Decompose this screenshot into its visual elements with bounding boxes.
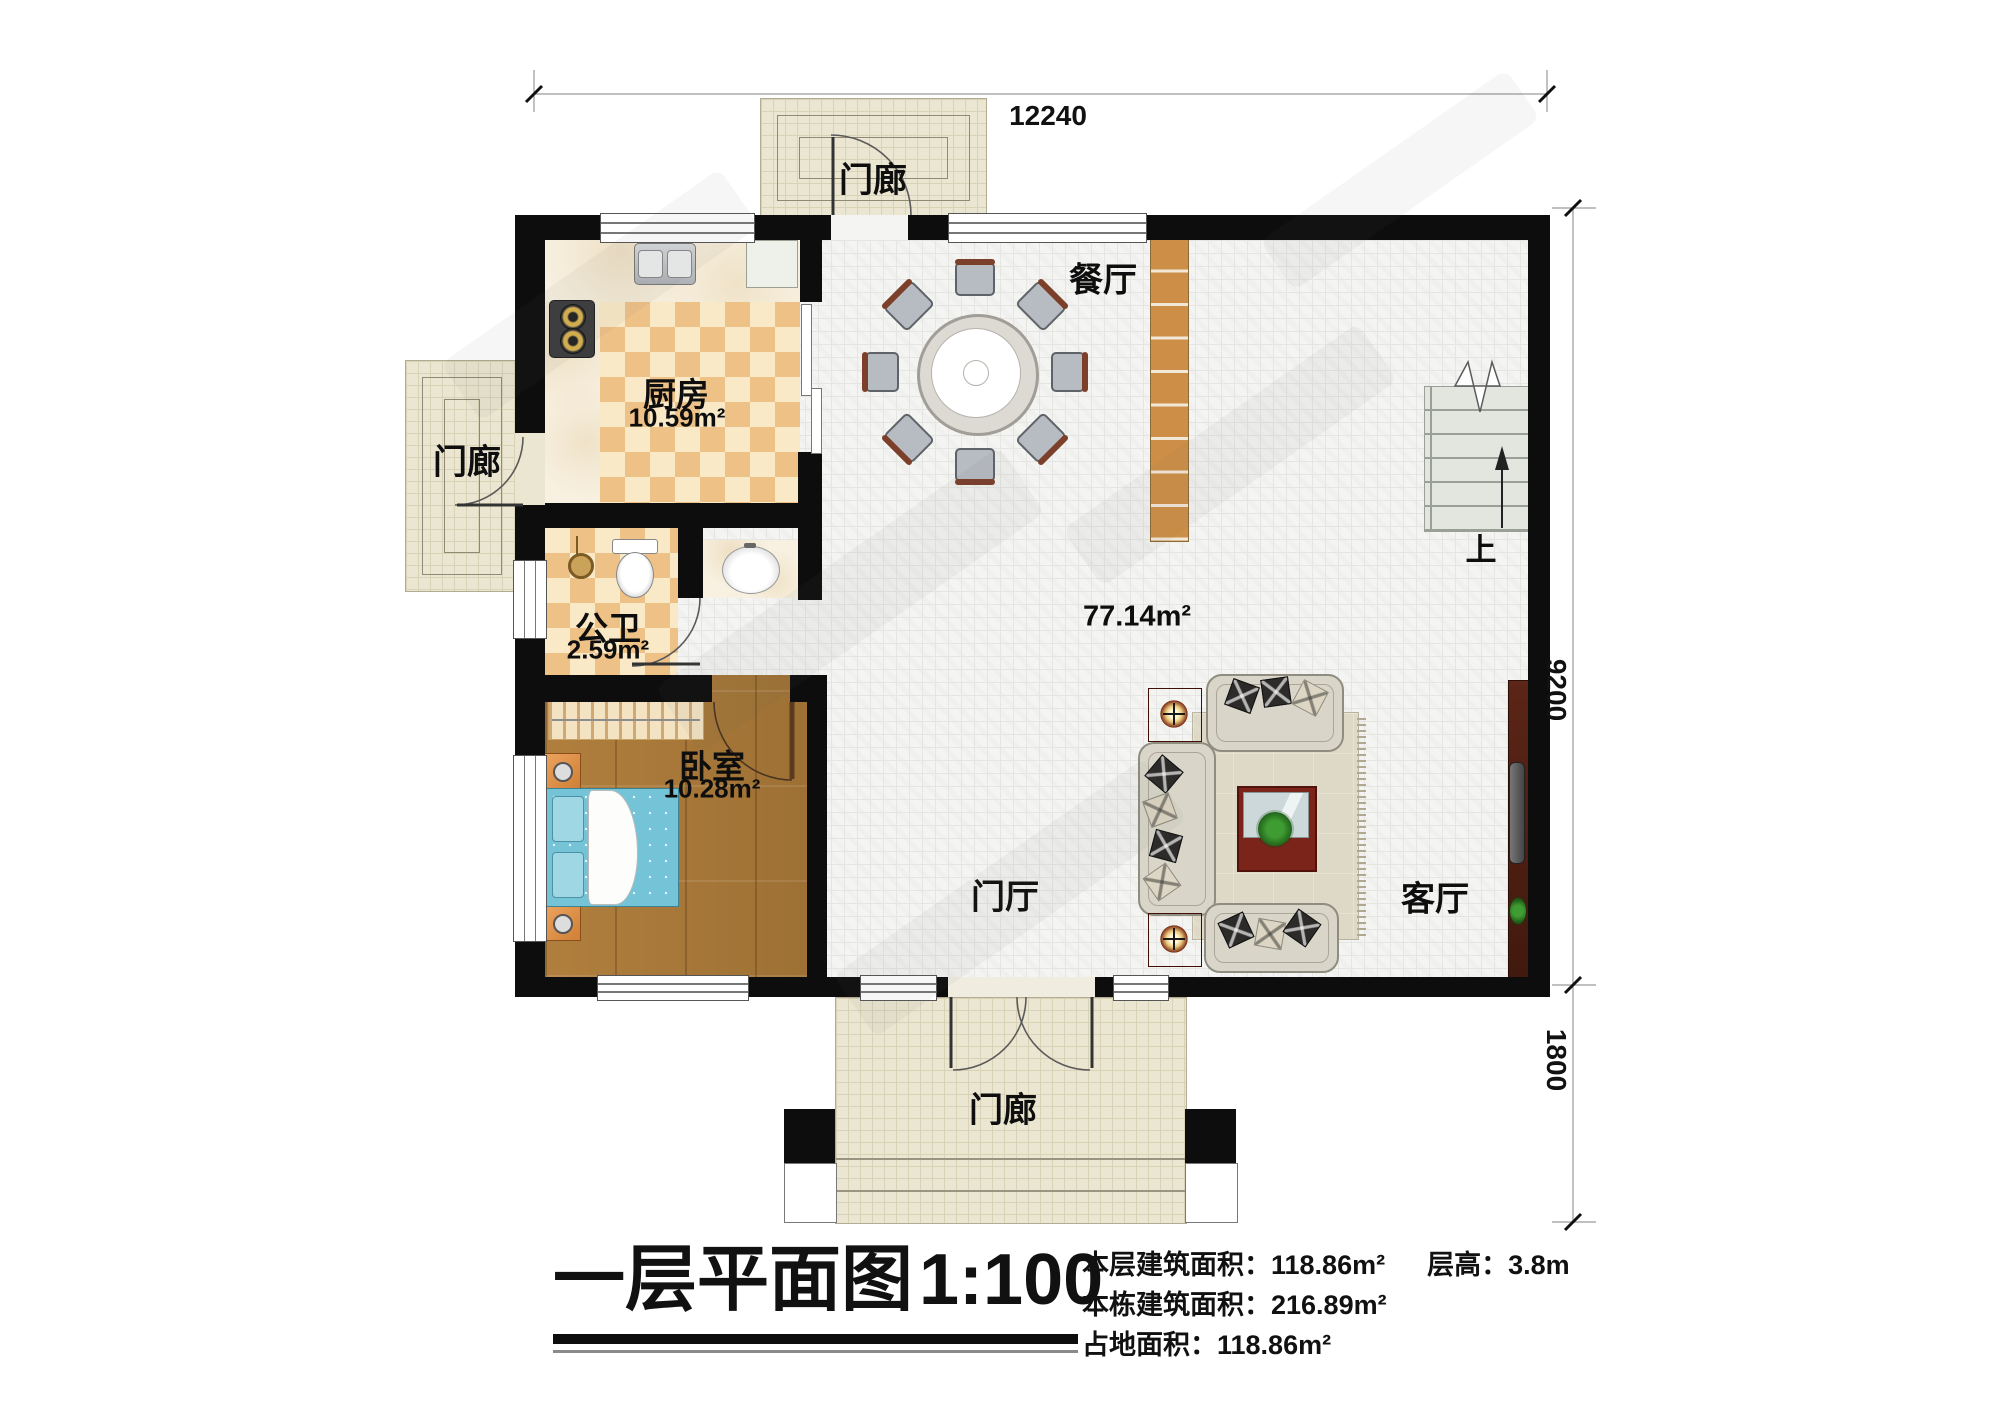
window-bedroom-west <box>513 755 547 942</box>
label-kitchen-area: 10.59m² <box>629 403 726 434</box>
wall-right <box>1528 215 1550 995</box>
opening-top-porch-door <box>831 215 908 240</box>
wall-kitchen-east-upper <box>800 240 822 302</box>
porch-pillar-base-left <box>784 1163 837 1223</box>
dining-cabinet <box>1150 238 1189 542</box>
table-lamp-top <box>1160 700 1188 728</box>
washbasin <box>722 546 780 594</box>
stat-floor-area-value: 118.86m² <box>1271 1250 1385 1280</box>
dim-tick <box>1565 200 1581 216</box>
nightstand-bottom <box>543 905 581 941</box>
porch-pillar-base-right <box>1185 1163 1238 1223</box>
washbasin-faucet <box>744 543 756 548</box>
kitchen-stove <box>549 300 595 358</box>
dining-set <box>880 277 1070 467</box>
label-living: 客厅 <box>1401 872 1469 921</box>
label-porch-top: 门廊 <box>839 153 907 202</box>
opening-main-entry <box>948 977 1095 997</box>
wardrobe <box>548 700 704 740</box>
bed-pillow-2 <box>552 852 584 898</box>
toilet-bowl <box>616 552 654 598</box>
wall-kitchen-east-lower <box>798 452 822 600</box>
stat-floor-area: 本层建筑面积：118.86m²层高：3.8m <box>1082 1243 1570 1282</box>
table-lamp-bottom <box>1160 925 1188 953</box>
opening-left-porch-door <box>515 433 545 505</box>
floor-plan-canvas: 门廊 餐厅 门廊 厨房 10.59m² 公卫 2.59m² 卧室 10.28m²… <box>0 0 2000 1413</box>
dim-porch-depth: 1800 <box>1540 1029 1572 1091</box>
label-porch-left: 门廊 <box>433 435 501 484</box>
stat-building-area-value: 216.89m² <box>1271 1290 1387 1320</box>
label-hall-area: 77.14m² <box>1083 601 1191 634</box>
coffee-table-plant <box>1258 812 1292 846</box>
label-bedroom-area: 10.28m² <box>664 774 761 805</box>
rug-fringe <box>1357 714 1366 936</box>
title-underline-thick <box>553 1334 1078 1344</box>
label-porch-bottom: 门廊 <box>969 1083 1037 1132</box>
label-dining: 餐厅 <box>1069 253 1137 302</box>
staircase <box>1424 386 1529 532</box>
stat-footprint: 占地面积：118.86m² <box>1082 1323 1331 1362</box>
porch-pillar-right <box>1185 1109 1236 1163</box>
bed-pillow-1 <box>552 796 584 842</box>
shower-head <box>568 553 594 579</box>
title-underline-thin <box>553 1350 1078 1353</box>
window-hall-south-left <box>860 975 937 1001</box>
dim-tick <box>1565 977 1581 993</box>
window-bathroom-west <box>513 560 547 639</box>
nightstand-top <box>543 753 581 789</box>
porch-pillar-left <box>784 1109 835 1163</box>
tv-cabinet-plant <box>1510 898 1526 924</box>
shower-hose <box>576 536 578 556</box>
kitchen-sliding-door-panel-1 <box>801 304 812 396</box>
wall-kitchen-south <box>545 503 798 528</box>
kitchen-double-sink <box>634 243 696 285</box>
wall-bedroom-north-a <box>520 675 712 702</box>
stat-storey-height-label: 层高： <box>1427 1250 1508 1280</box>
stat-footprint-label: 占地面积： <box>1082 1330 1217 1360</box>
window-bedroom-south <box>597 975 749 1001</box>
title-scale: 1:100 <box>919 1244 1103 1316</box>
dim-tick <box>1539 86 1555 102</box>
stat-floor-area-label: 本层建筑面积： <box>1082 1250 1271 1280</box>
stat-storey-height-value: 3.8m <box>1508 1250 1570 1280</box>
label-hall: 门厅 <box>971 870 1039 919</box>
stat-building-area: 本栋建筑面积：216.89m² <box>1082 1283 1387 1322</box>
tv <box>1509 762 1525 864</box>
dim-tick <box>526 86 542 102</box>
dim-right-height: 9200 <box>1540 659 1572 721</box>
wall-bathroom-east <box>678 528 703 598</box>
stat-building-area-label: 本栋建筑面积： <box>1082 1290 1271 1320</box>
window-dining-north <box>948 213 1147 243</box>
window-hall-south-right <box>1113 975 1169 1001</box>
label-bathroom-area: 2.59m² <box>567 635 649 666</box>
wall-bedroom-east <box>807 675 827 977</box>
dim-tick <box>1565 1214 1581 1230</box>
label-stairs-up: 上 <box>1466 525 1497 570</box>
window-kitchen-north <box>600 213 755 243</box>
title-text: 一层平面图 <box>553 1244 913 1316</box>
kitchen-sliding-door-panel-2 <box>811 388 822 454</box>
dim-top-width: 12240 <box>1009 100 1087 132</box>
fridge <box>746 240 798 288</box>
drawing-title: 一层平面图1:100 <box>553 1244 1103 1316</box>
stat-footprint-value: 118.86m² <box>1217 1330 1331 1360</box>
